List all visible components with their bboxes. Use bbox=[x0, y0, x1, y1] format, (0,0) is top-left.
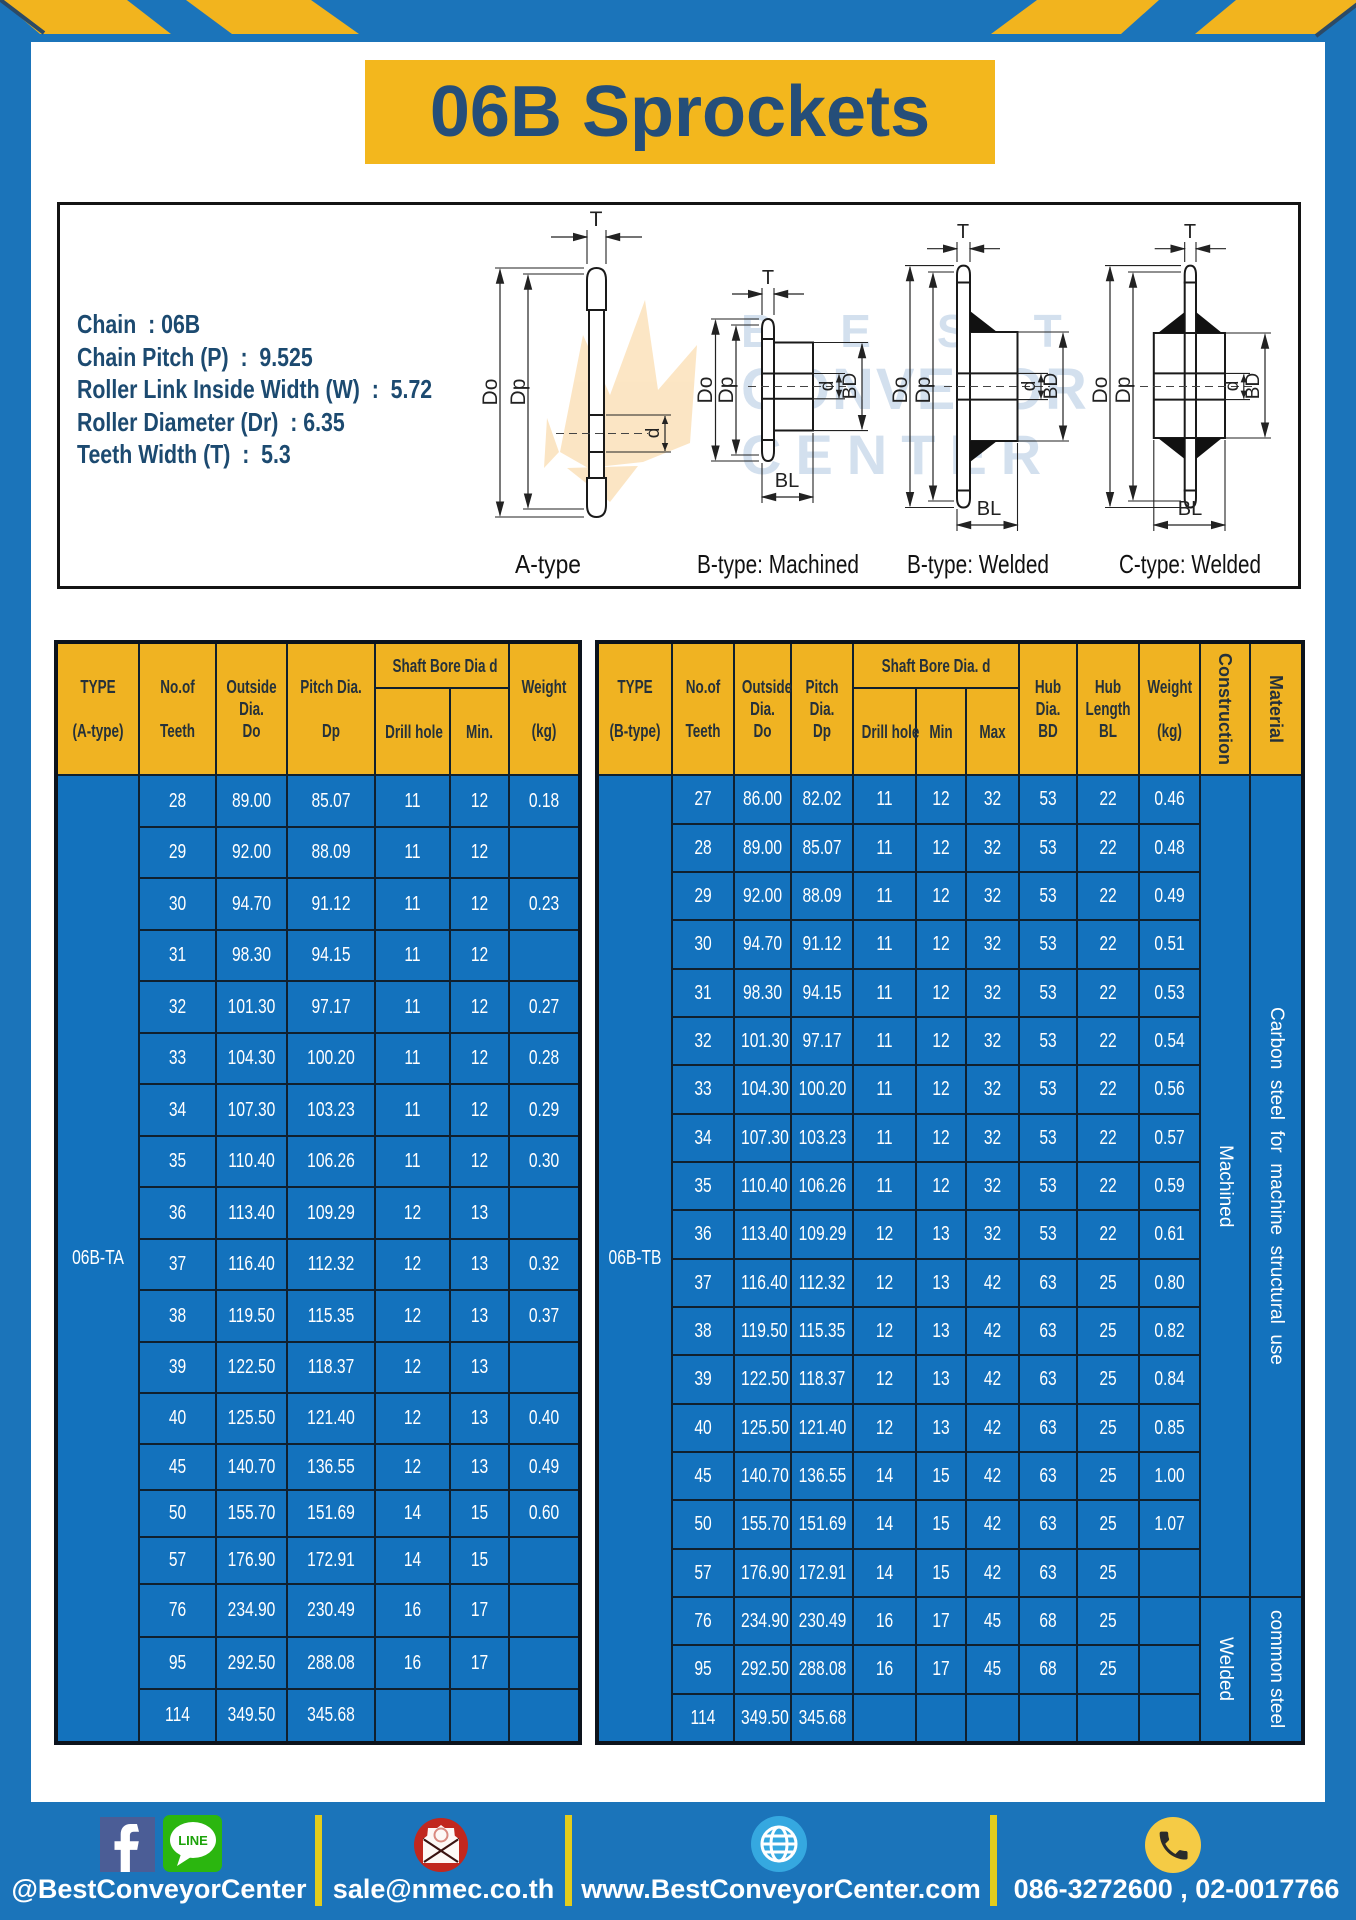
svg-text:C-type: Welded: C-type: Welded bbox=[1119, 549, 1261, 579]
svg-text:BL: BL bbox=[1178, 498, 1202, 520]
svg-text:Dp: Dp bbox=[507, 379, 530, 406]
svg-text:BD: BD bbox=[1041, 373, 1062, 399]
svg-text:BL: BL bbox=[977, 498, 1001, 520]
svg-text:LINE: LINE bbox=[178, 1833, 208, 1848]
svg-text:Dp: Dp bbox=[1112, 377, 1135, 404]
svg-text:d: d bbox=[1019, 381, 1040, 392]
svg-text:d: d bbox=[643, 428, 664, 439]
svg-text:Do: Do bbox=[889, 377, 912, 404]
svg-text:d: d bbox=[1222, 381, 1243, 392]
svg-text:T: T bbox=[1184, 221, 1196, 243]
svg-text:T: T bbox=[762, 267, 774, 289]
svg-text:Dp: Dp bbox=[715, 377, 738, 404]
svg-text:Do: Do bbox=[694, 377, 717, 404]
svg-text:BL: BL bbox=[775, 470, 799, 492]
svg-text:BD: BD bbox=[1243, 373, 1264, 399]
svg-text:T: T bbox=[590, 208, 603, 231]
svg-text:Do: Do bbox=[1089, 377, 1112, 404]
svg-text:d: d bbox=[817, 381, 838, 392]
svg-text:T: T bbox=[957, 221, 969, 243]
svg-text:B-type: Machined: B-type: Machined bbox=[697, 549, 859, 579]
svg-text:A-type: A-type bbox=[515, 549, 581, 579]
svg-text:Dp: Dp bbox=[912, 377, 935, 404]
svg-text:B-type: Welded: B-type: Welded bbox=[907, 549, 1049, 579]
svg-text:BD: BD bbox=[840, 373, 861, 399]
svg-text:Do: Do bbox=[479, 379, 502, 406]
